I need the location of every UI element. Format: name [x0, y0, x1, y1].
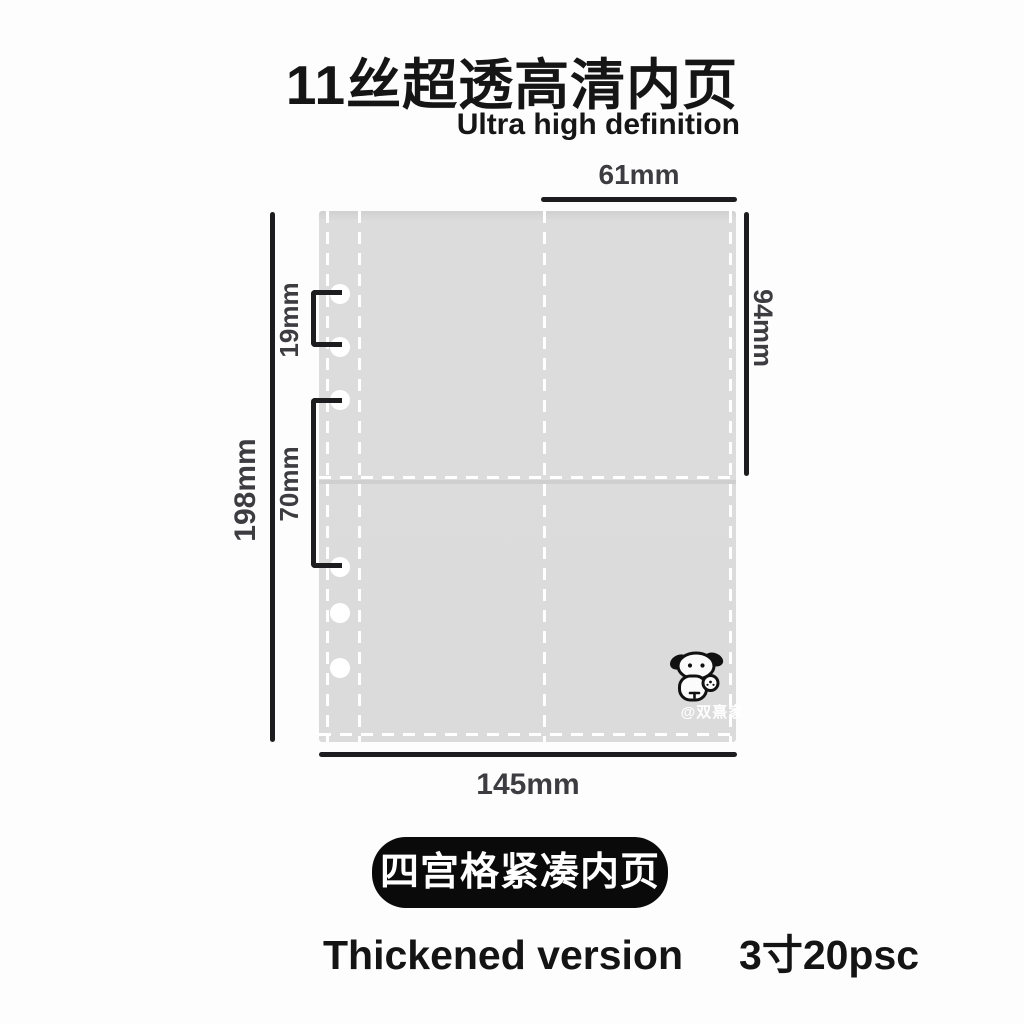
measure-label-pocket-width: 61mm: [541, 159, 737, 191]
measure-line-sheet-width: [319, 752, 737, 757]
binder-sheet: @双熹家: [319, 211, 736, 742]
measure-label-sheet-height: 198mm: [230, 410, 262, 570]
measure-label-hole-pitch: 19mm: [275, 270, 303, 370]
measure-line-pocket-width: [541, 197, 737, 202]
measure-label-sheet-width: 145mm: [319, 768, 737, 802]
size-quantity-text: 3寸20psc: [739, 921, 919, 981]
binder-hole: [330, 658, 350, 678]
dog-mascot-icon: [666, 649, 730, 703]
bracket-hole-pitch: [311, 290, 342, 347]
watermark-handle: @双熹家: [655, 701, 770, 722]
thickened-version-text: Thickened version: [323, 932, 683, 979]
seam-horizontal-center: [319, 476, 736, 479]
seam-shadow: [319, 480, 736, 484]
footer-spec-row: Thickened version 3寸20psc: [323, 921, 963, 981]
product-infographic: 11丝超透高清内页 Ultra high definition: [0, 0, 1024, 1024]
seam-horizontal-bottom: [319, 733, 736, 736]
spec-badge: 四宫格紧凑内页: [372, 837, 668, 908]
measure-label-pocket-height: 94mm: [748, 268, 778, 388]
page-subtitle: Ultra high definition: [0, 108, 740, 142]
binder-hole: [330, 603, 350, 623]
bracket-hole-group-gap: [311, 398, 342, 568]
measure-label-hole-group-gap: 70mm: [275, 424, 303, 544]
